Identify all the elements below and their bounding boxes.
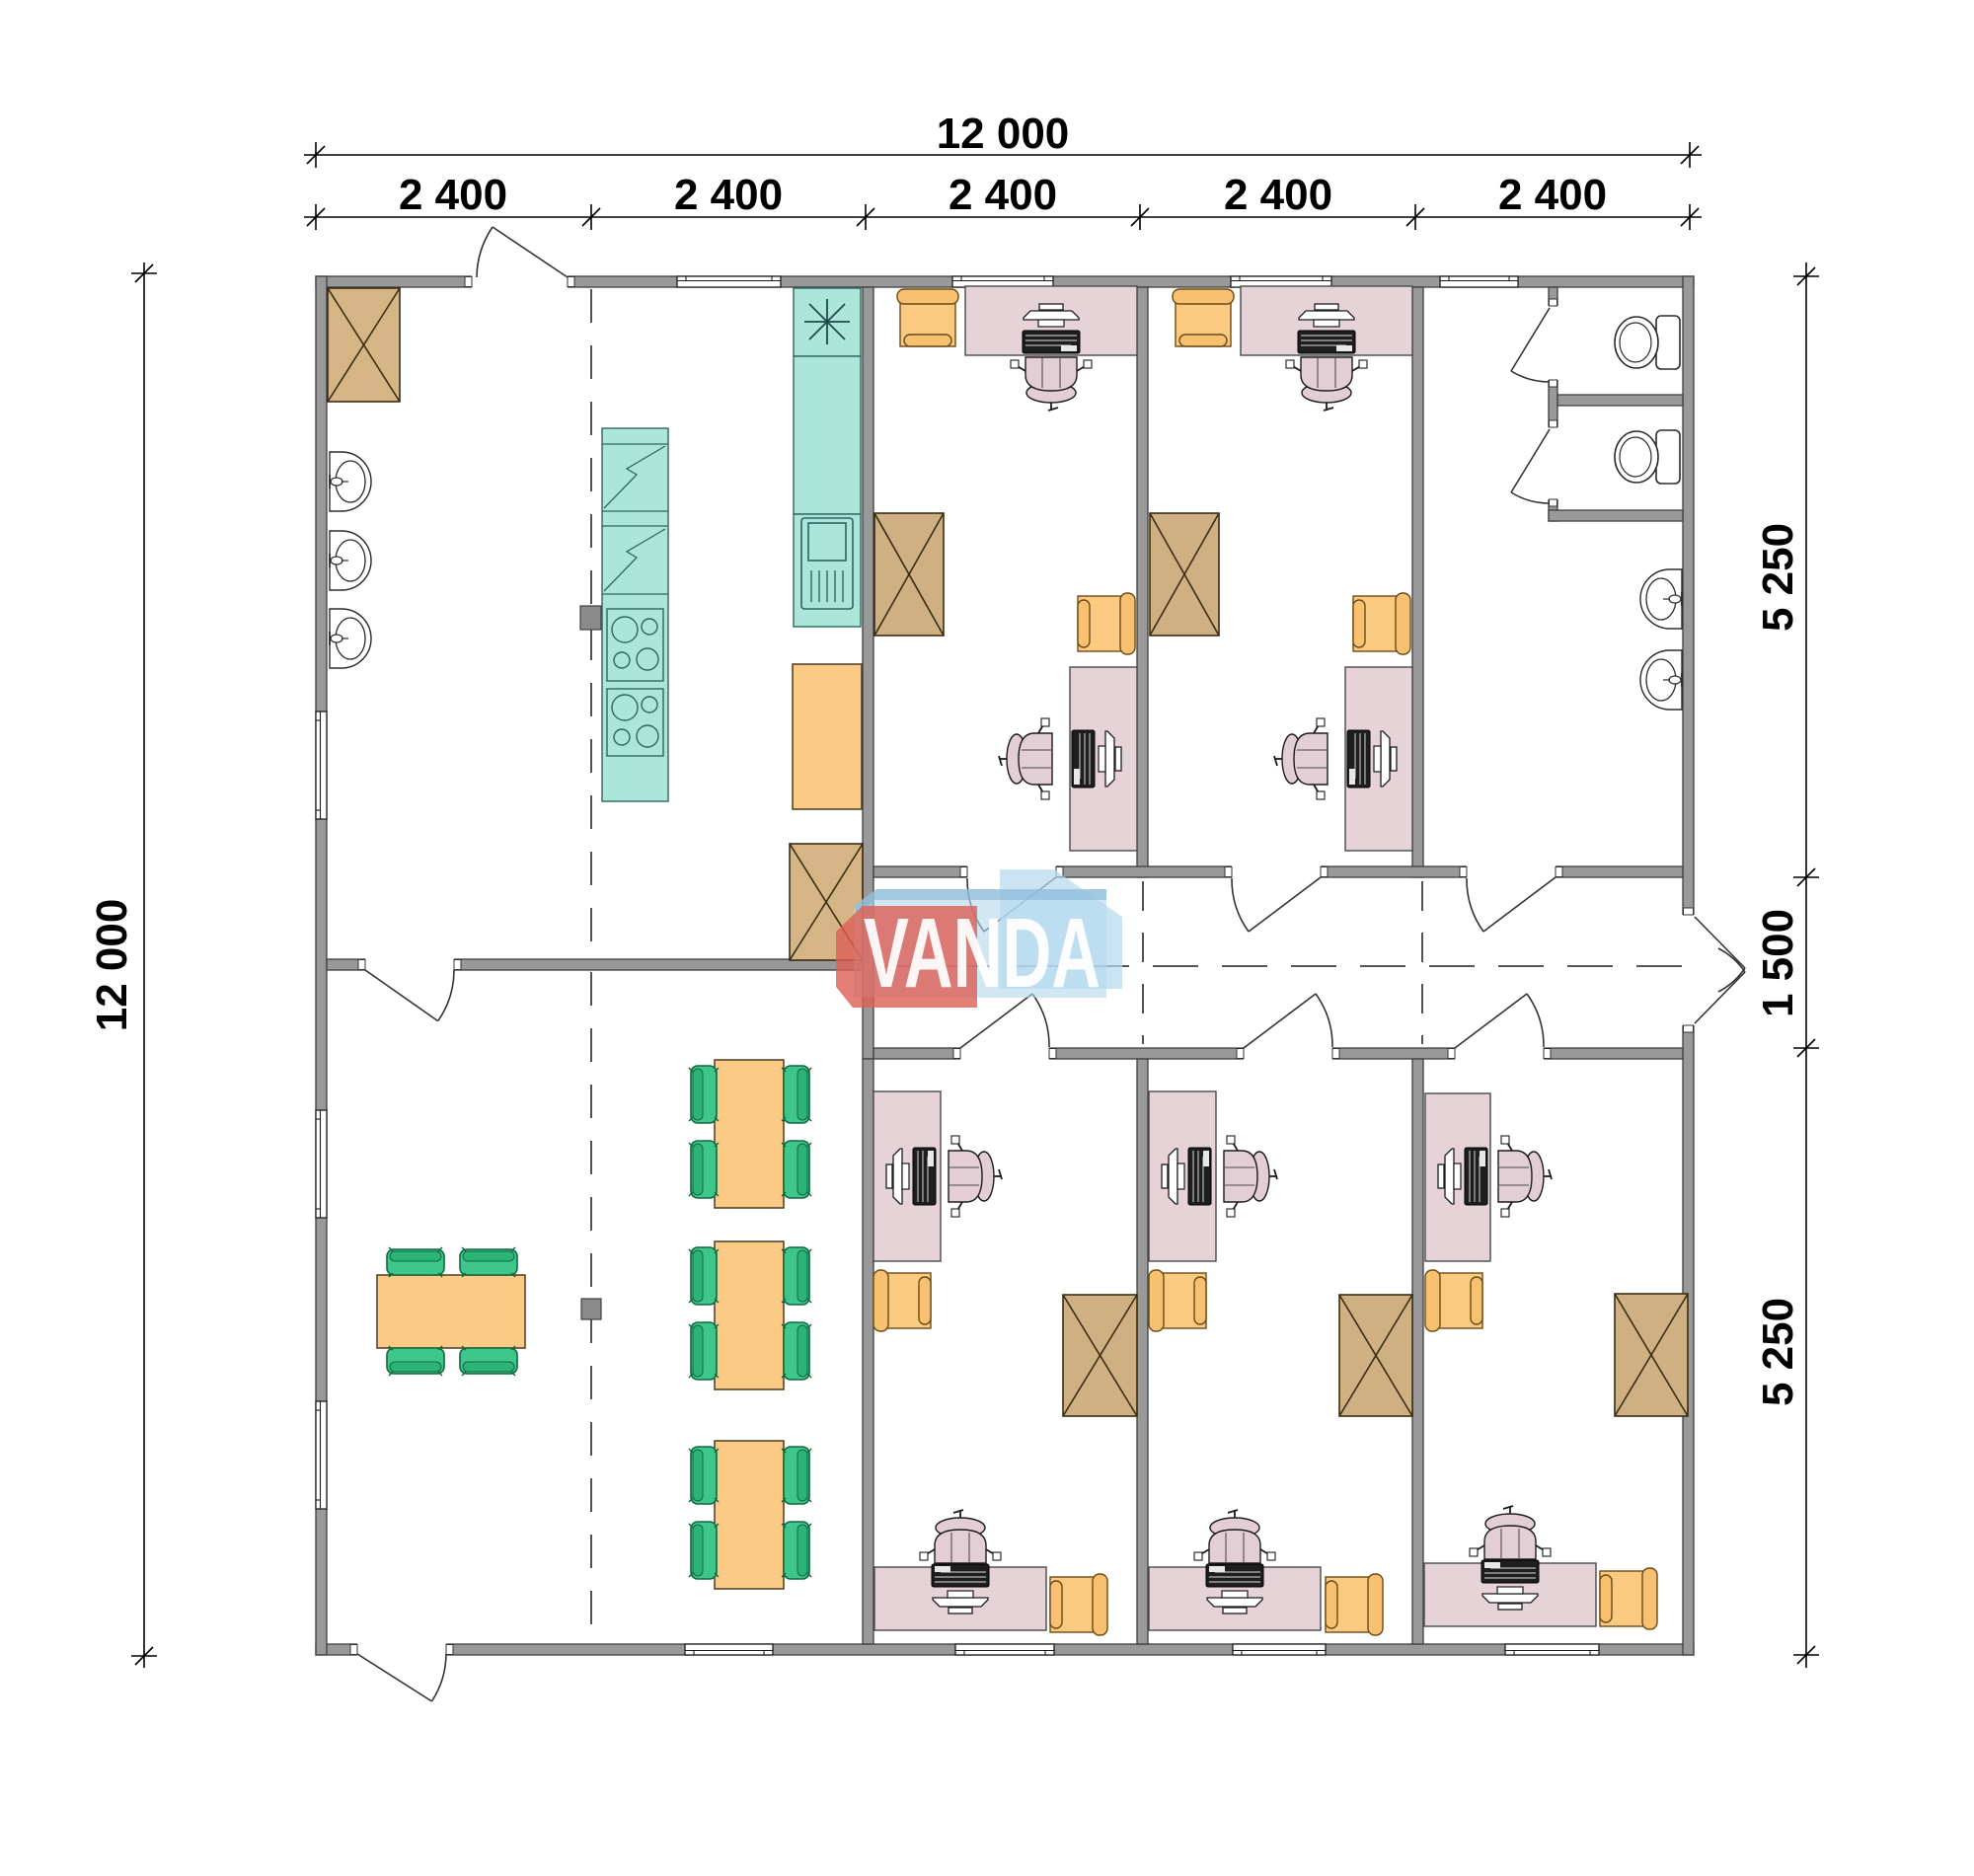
svg-text:1 500: 1 500 (1754, 909, 1802, 1017)
svg-text:2 400: 2 400 (674, 171, 783, 219)
svg-text:5 250: 5 250 (1754, 1298, 1802, 1406)
svg-text:12 000: 12 000 (937, 110, 1070, 158)
svg-text:5 250: 5 250 (1754, 523, 1802, 632)
svg-text:2 400: 2 400 (1224, 171, 1332, 219)
svg-text:2 400: 2 400 (949, 171, 1057, 219)
svg-text:VANDA: VANDA (864, 898, 1101, 1009)
svg-text:2 400: 2 400 (399, 171, 507, 219)
svg-text:12 000: 12 000 (88, 899, 136, 1032)
svg-text:2 400: 2 400 (1498, 171, 1607, 219)
